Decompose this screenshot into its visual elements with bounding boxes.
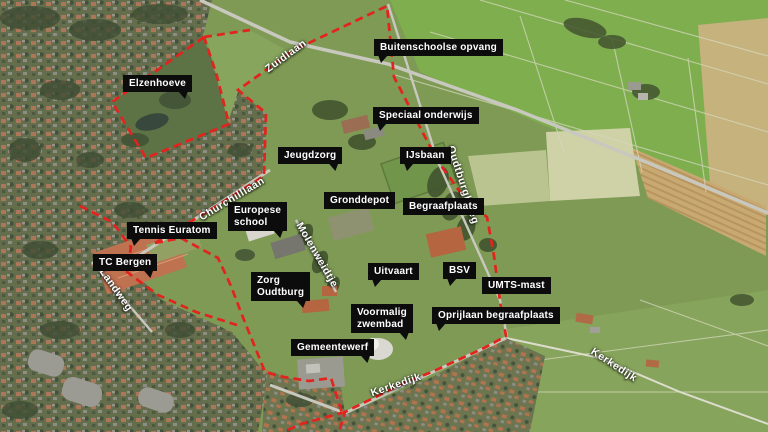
map-label-text: UMTS-mast xyxy=(488,280,545,291)
map-label-text: IJsbaan xyxy=(406,150,445,161)
map-label-text: Zorg Oudtburg xyxy=(257,275,304,298)
map-label: Jeugdzorg xyxy=(278,147,342,164)
map-label-text: Buitenschoolse opvang xyxy=(380,42,497,53)
map-label: UMTS-mast xyxy=(482,277,551,294)
map-label-text: Gemeentewerf xyxy=(297,342,368,353)
map-label: Europese school xyxy=(228,202,287,231)
map-label-text: BSV xyxy=(449,265,470,276)
map-label-text: Voormalig zwembad xyxy=(357,307,407,330)
map-label-text: Elzenhoeve xyxy=(129,78,186,89)
map-label-text: Speciaal onderwijs xyxy=(379,110,473,121)
map-label: IJsbaan xyxy=(400,147,451,164)
map-label: TC Bergen xyxy=(93,254,157,271)
map-label: Oprijlaan begraafplaats xyxy=(432,307,560,324)
map-label-text: Begraafplaats xyxy=(409,201,478,212)
map-label: Zorg Oudtburg xyxy=(251,272,310,301)
map-label: BSV xyxy=(443,262,476,279)
map-canvas: ElzenhoeveBuitenschoolse opvangSpeciaal … xyxy=(0,0,768,432)
map-label-text: Tennis Euratom xyxy=(133,225,211,236)
map-label-text: Europese school xyxy=(234,205,281,228)
map-label: Begraafplaats xyxy=(403,198,484,215)
map-label-text: TC Bergen xyxy=(99,257,151,268)
map-label-text: Uitvaart xyxy=(374,266,413,277)
map-label: Gemeentewerf xyxy=(291,339,374,356)
map-label: Elzenhoeve xyxy=(123,75,192,92)
map-label: Voormalig zwembad xyxy=(351,304,413,333)
map-label: Tennis Euratom xyxy=(127,222,217,239)
map-label: Uitvaart xyxy=(368,263,419,280)
map-label: Buitenschoolse opvang xyxy=(374,39,503,56)
aerial-basemap xyxy=(0,0,768,432)
map-label-text: Gronddepot xyxy=(330,195,389,206)
map-label-text: Oprijlaan begraafplaats xyxy=(438,310,554,321)
map-label: Speciaal onderwijs xyxy=(373,107,479,124)
map-label: Gronddepot xyxy=(324,192,395,209)
map-label-text: Jeugdzorg xyxy=(284,150,336,161)
